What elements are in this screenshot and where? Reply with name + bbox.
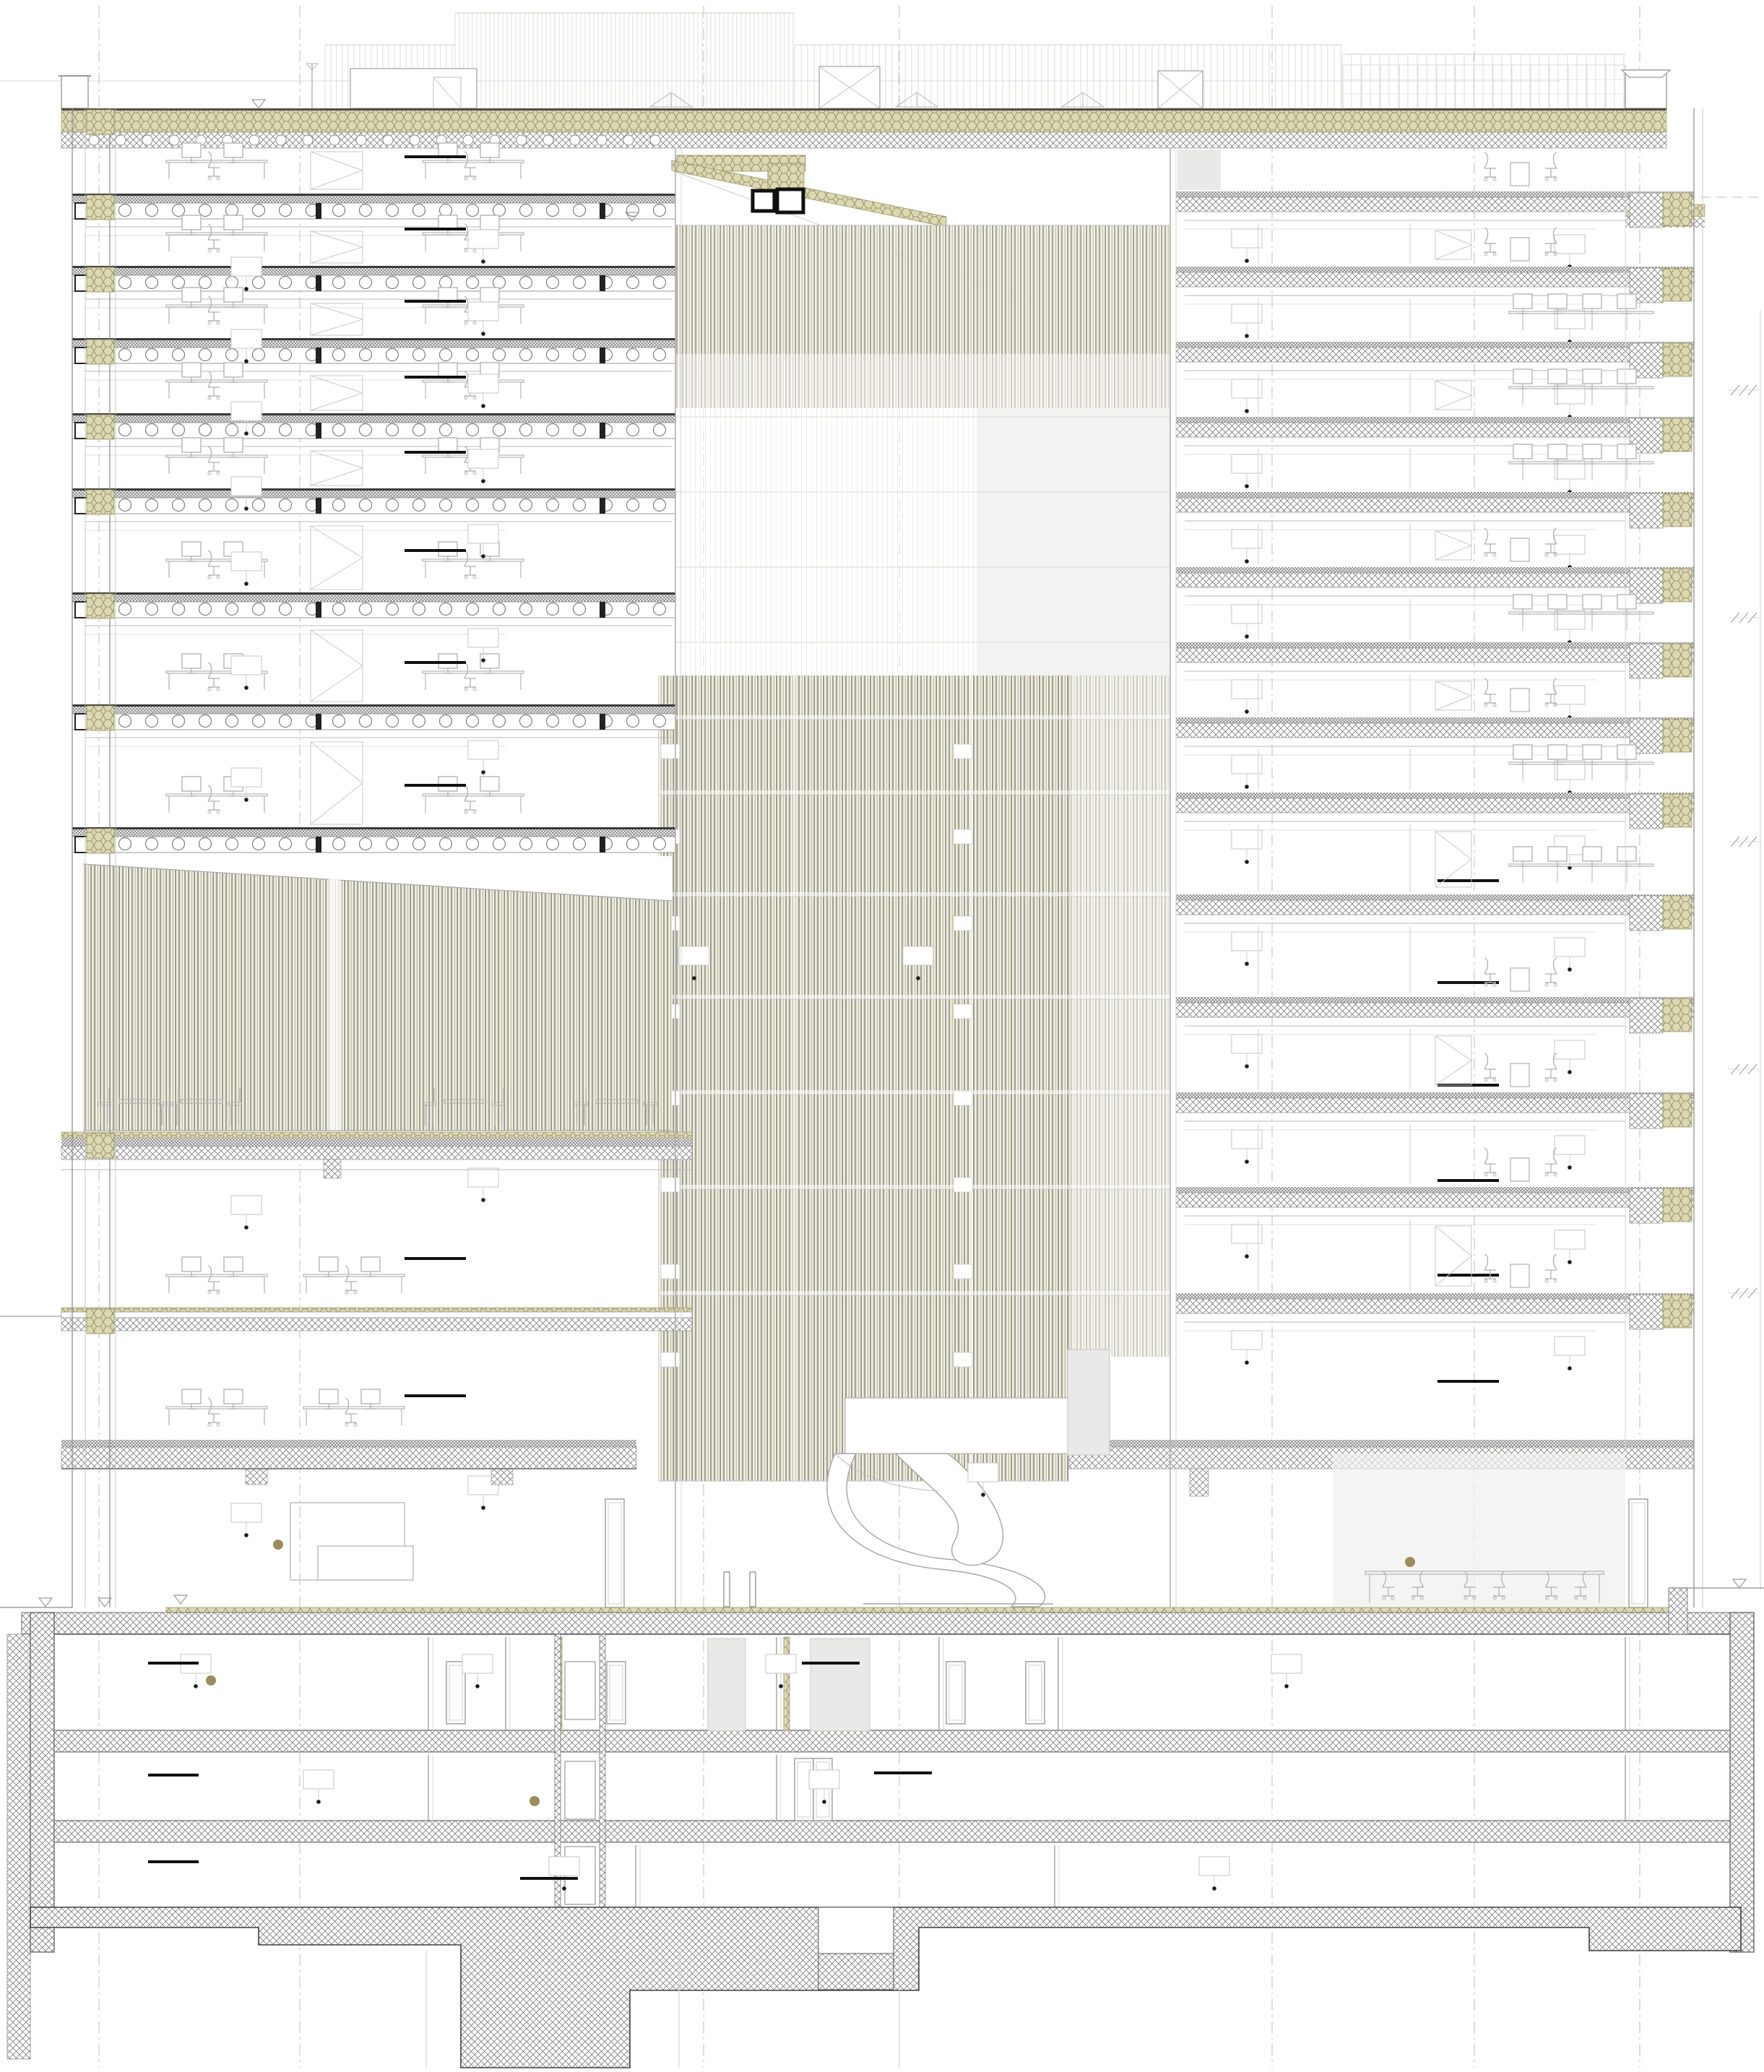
drawing-stage: [0, 0, 1764, 2072]
atrium: [659, 148, 1170, 1481]
basement: [7, 1613, 1754, 2068]
section-svg: [0, 0, 1764, 2072]
rooftop-equipment: [59, 13, 1670, 108]
